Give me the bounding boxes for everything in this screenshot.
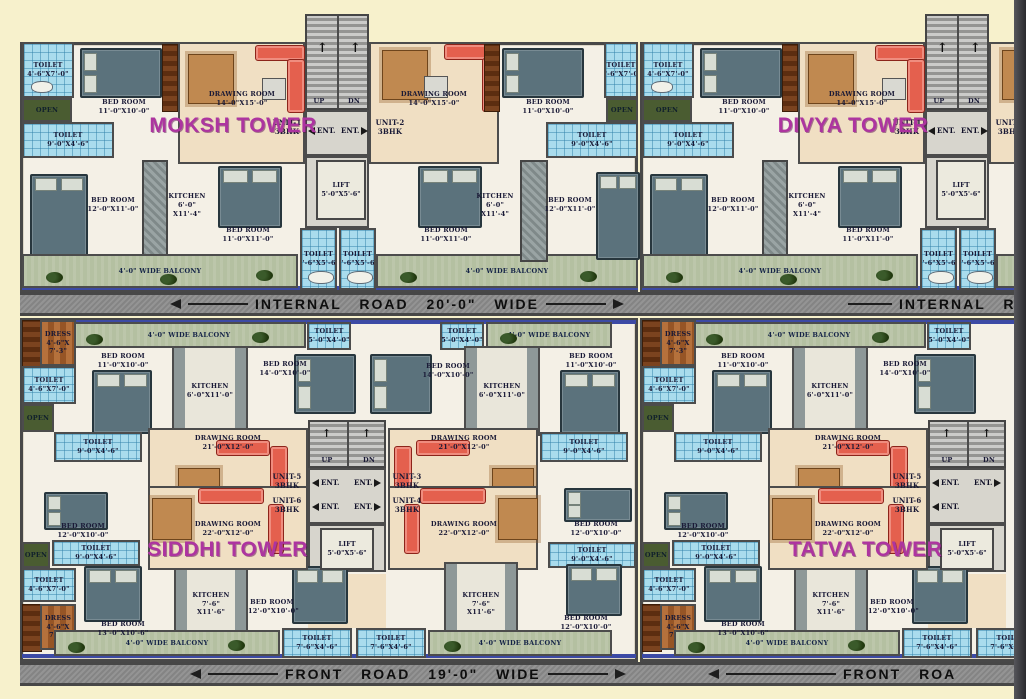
room-dim: 4'-6"X [46,339,69,348]
wardrobe-icon [642,604,662,652]
sofa-icon [198,488,264,504]
kitchen-counter-icon [142,160,168,262]
room-label: BED ROOM [702,196,764,205]
ent-label: ENT. [354,502,372,511]
up-label: UP [932,456,962,465]
room-dim: 11'-0"X10'-0" [506,107,590,116]
lift: LIFT5'-0"X5'-6" [316,160,366,220]
room-label: TOILET [703,438,732,447]
open-area: OPEN [642,98,692,122]
road-label-group: INTERNAL ROAD [848,296,1014,312]
moksh-tower-block: TOILET4'-6"X7'-0" OPEN TOILET9'-0"X4'-6"… [20,14,640,292]
room-label: DRESS [45,330,71,339]
room-label: TOILET [996,634,1014,643]
toilet-room: TOILET4'-6"X7'-0" [642,366,696,404]
toilet-room: TOILET4'-6"X5'-6" [959,228,996,290]
room-dim: 21'-0"X12'-0" [788,443,908,452]
room-dim: 14'-0"X15'-0" [810,99,914,108]
kitchen: KITCHEN6'-0"X11'-0" [464,346,540,436]
dn-label: DN [974,456,1004,465]
room-label: DRAWING ROOM [166,520,290,529]
bedroom-label: BED ROOM12'-0"X11'-0" [544,196,596,214]
toilet-room: TOILET4'-6"X5'-6" [920,228,957,290]
open-area: OPEN [22,542,50,568]
up-text: UP [306,97,332,106]
bedroom-label: BED ROOM12'-0"X10'-0" [550,614,622,632]
room-label: BED ROOM [702,98,786,107]
up-label: UP [306,97,332,106]
bed-icon [218,166,282,228]
plant-icon [86,334,103,345]
room-dim: 7'-6" [202,600,220,609]
balcony: 4'-0" WIDE BALCONY [692,322,926,348]
open-area: OPEN [606,98,638,122]
room-label: BED ROOM [868,598,916,607]
bed-icon [292,566,348,624]
toilet-fixture-icon [347,271,373,284]
room-dim: X11'-6" [817,608,845,617]
room-dim: 6'-0" [472,201,518,210]
lift-dim: 5'-0"X5'-6" [321,190,360,199]
plant-icon [160,274,177,285]
room-label: BED ROOM [544,196,596,205]
toilet-room: TOILET9'-0"X4'-6" [540,432,628,462]
room-label: BED ROOM [80,352,166,361]
ent-arrow-icon [374,503,381,511]
tower-name: MOKSH TOWER [138,114,328,138]
plant-icon [580,271,597,282]
drawing-room-label: DRAWING ROOM21'-0"X12'-0" [168,434,288,452]
room-label: KITCHEN [166,192,208,201]
arrow-line [546,303,606,305]
plant-icon [252,332,269,343]
kitchen-label: KITCHEN6'-0"X11'-4" [472,192,518,218]
plant-icon [444,641,461,652]
unit-label: UNIT-53BHK [888,472,926,491]
toilet-room: TOILET4'-6"X5'-6" [339,228,376,290]
room-label: BED ROOM [548,352,634,361]
room-label: DRESS [665,614,691,623]
room-dim: 12'-0"X10'-0" [550,623,622,632]
siddhi-tower-block: 4'-0" WIDE BALCONY 4'-0" WIDE BALCONY TO… [20,316,640,662]
entry-left: ENT. [932,478,959,487]
room-dim: 6'-0"X11'-0" [479,391,525,400]
drawing-room-label: DRAWING ROOM21'-0"X12'-0" [788,434,908,452]
room-label: BED ROOM [252,360,318,369]
room-label: KITCHEN [191,382,228,391]
plant-icon [876,270,893,281]
open-label: OPEN [36,106,58,115]
room-label: BED ROOM [248,598,296,607]
toilet-room: TOILET9'-0"X4'-6" [52,540,140,566]
room-dim: 7'-6"X4'-6" [916,643,957,652]
room-dim: 21'-0"X12'-0" [168,443,288,452]
room-label: KITCHEN [192,591,229,600]
room-label: TOILET [653,61,682,70]
tatva-tower-block: 4'-0" WIDE BALCONY TOILET5'-0"X4'-0" DRE… [640,316,1014,662]
up-text: UP [312,456,342,465]
room-label: DRAWING ROOM [402,520,526,529]
room-dim: 12'-0"X10'-0" [558,529,634,538]
room-label: DRESS [45,614,71,623]
plant-icon [706,334,723,345]
toilet-room: TOILET7'-6"X4'-6" [976,628,1014,658]
unit-label: UNIT-63BHK [888,496,926,515]
room-dim: 4'-6"X5'-6" [959,259,996,268]
arrow-line [208,673,278,675]
arrow-left-icon [190,669,201,679]
tower-name: TATVA TOWER [768,538,963,562]
lift-dim: 5'-0"X5'-6" [941,190,980,199]
bedroom-label: BED ROOM11'-0"X10'-0" [548,352,634,370]
room-label: TOILET [34,376,63,385]
internal-road-label: INTERNAL ROAD 20'-0" WIDE [255,296,539,312]
room-label: DRAWING ROOM [786,520,910,529]
stair-arrow-icon: ↑ [942,428,951,439]
room-label: TOILET [81,544,110,553]
bedroom-label: BED ROOM11'-0"X10'-0" [506,98,590,116]
open-area: OPEN [22,98,72,122]
room-label: TOILET [654,576,683,585]
unit-label: UNIT-23BHK [992,118,1014,137]
bedroom-label: BED ROOM11'-0"X10'-0" [700,352,786,370]
room-label: DRAWING ROOM [168,434,288,443]
drawing-room-label: DRAWING ROOM14'-0"X15'-0" [380,90,488,108]
room-label: TOILET [33,61,62,70]
sofa-icon [420,488,486,504]
room-label: DRAWING ROOM [404,434,524,443]
bedroom-label: BED ROOM12'-0"X10'-0" [668,522,738,540]
bed-icon [838,166,902,228]
toilet-room: TOILET9'-0"X4'-6" [546,122,638,158]
room-label: TOILET [934,327,963,336]
room-label: TOILET [606,61,635,70]
room-dim: 9'-0"X4'-6" [667,140,708,149]
room-label: DRAWING ROOM [1000,90,1014,99]
drawing-room-label: DRAWING ROOM14'-0"X15'-0" [190,90,294,108]
road-label-group: FRONT ROAD 19'-0" WIDE [190,666,626,682]
room-label: BED ROOM [48,522,118,531]
plant-icon [68,642,85,653]
balcony-label: 4'-0" WIDE BALCONY [746,639,829,648]
ent-arrow-icon [312,503,319,511]
room-label: TOILET [577,131,606,140]
room-dim: 4'-6"X7'-0" [648,385,689,394]
room-dim: 6'-0"X11'-0" [807,391,853,400]
room-label: TOILET [447,327,476,336]
entry-left: ENT. [932,502,959,511]
balcony-label: 4'-0" WIDE BALCONY [148,331,231,340]
floor-plan: TOILET4'-6"X7'-0" OPEN TOILET9'-0"X4'-6"… [0,0,1026,699]
toilet-fixture-icon [31,81,53,93]
unit-type: 3BHK [268,505,306,514]
arrow-line [726,673,836,675]
dn-label: DN [354,456,384,465]
entry-right: ENT. [961,126,988,135]
unit-number: UNIT-3 [388,472,426,481]
room-dim: 14'-0"X10'-0" [872,369,938,378]
entry-lobby [308,468,386,524]
room-label: TOILET [673,131,702,140]
wardrobe-icon [22,320,42,368]
bedroom-label: BED ROOM12'-0"X11'-0" [82,196,144,214]
unit-number: UNIT-2 [372,118,408,127]
plant-icon [256,270,273,281]
room-dim: 14'-0"X10'-0" [418,371,478,380]
lift-label: LIFT [338,540,355,549]
image-right-edge [1014,0,1026,699]
ent-arrow-icon [312,479,319,487]
room-label: BED ROOM [506,98,590,107]
front-road: FRONT ROAD 19'-0" WIDE FRONT ROA [20,662,1014,686]
stair-arrow-icon: ↑ [970,42,981,55]
open-label: OPEN [611,106,633,115]
top-band: TOILET4'-6"X7'-0" OPEN TOILET9'-0"X4'-6"… [20,14,1014,292]
toilet-room: TOILET4'-6"X5'-6" [300,228,337,290]
unit-number: UNIT-6 [268,496,306,505]
toilet-fixture-icon [928,271,954,284]
room-label: KITCHEN [472,192,518,201]
room-dim: 5'-0"X4'-0" [308,336,349,345]
room-label: TOILET [302,634,331,643]
balcony-label: 4'-0" WIDE BALCONY [119,267,202,276]
room-dim: 13'-0"X10'-6" [700,629,786,638]
room-dim: 7'-3" [49,347,67,356]
open-label: OPEN [656,106,678,115]
room-dim: 9'-0"X4'-6" [697,447,738,456]
toilet-room: TOILET9'-0"X4'-6" [22,122,114,158]
room-label: TOILET [83,438,112,447]
bedroom-label: BED ROOM13'-0"X10'-6" [700,620,786,638]
bedroom-label: BED ROOM11'-0"X10'-0" [80,352,166,370]
room-dim: 4'-6"X7'-0" [648,585,689,594]
toilet-room: TOILET4'-6"X7'-0" [22,366,76,404]
room-label: BED ROOM [828,226,908,235]
room-label: TOILET [569,438,598,447]
room-dim: 4'-6"X [666,339,689,348]
room-label: BED ROOM [208,226,288,235]
ent-label: ENT. [941,502,959,511]
bed-icon [704,566,762,622]
room-dim: 11'-0"X11'-0" [406,235,486,244]
bedroom-label: BED ROOM14'-0"X10'-0" [872,360,938,378]
open-label: OPEN [25,551,47,560]
ent-arrow-icon [932,479,939,487]
room-dim: X11'-4" [472,210,518,219]
entry-right: ENT. [354,502,381,511]
ent-arrow-icon [994,479,1001,487]
unit-number: UNIT-5 [268,472,306,481]
room-label: BED ROOM [80,620,166,629]
unit-label: UNIT-53BHK [268,472,306,491]
room-dim: 12'-0"X10'-0" [248,607,296,616]
stair-arrow-icon: ↑ [362,428,371,439]
toilet-room: TOILET5'-0"X4'-0" [307,322,351,350]
entry-right: ENT. [341,126,368,135]
bed-icon [596,172,640,260]
ent-label: ENT. [341,126,359,135]
internal-road-label-cut: INTERNAL ROAD [899,296,1014,312]
wardrobe-icon [642,320,662,368]
unit-label: UNIT-43BHK [388,496,426,515]
ent-arrow-icon [374,479,381,487]
balcony-label: 4'-0" WIDE BALCONY [126,639,209,648]
room-dim: 12'-0"X11'-0" [82,205,144,214]
room-label: DRESS [665,330,691,339]
bedroom-label: BED ROOM12'-0"X10'-0" [868,598,916,616]
stair-arrow-icon: ↑ [322,428,331,439]
dress-room: DRESS4'-6"X7'-3" [660,320,696,366]
internal-road: INTERNAL ROAD 20'-0" WIDE INTERNAL ROAD [20,292,1014,316]
open-label: OPEN [647,414,669,423]
up-text: UP [926,97,952,106]
room-dim: X11'-6" [467,608,495,617]
bed-icon [564,488,632,522]
room-dim: 9'-0"X4'-6" [77,447,118,456]
toilet-room: TOILET7'-6"X4'-6" [282,628,352,658]
ent-label: ENT. [974,478,992,487]
toilet-room: TOILET7'-6"X4'-6" [902,628,972,658]
unit-label: UNIT-63BHK [268,496,306,515]
bed-icon [912,566,968,624]
lift-label: LIFT [332,181,349,190]
room-dim: 12'-0"X11'-0" [544,205,596,214]
room-dim: 12'-0"X10'-0" [868,607,916,616]
bedroom-label: BED ROOM12'-0"X10'-0" [558,520,634,538]
divya-tower-block: TOILET4'-6"X7'-0" OPEN TOILET9'-0"X4'-6"… [640,14,1014,292]
bedroom-label: BED ROOM12'-0"X10'-0" [48,522,118,540]
room-dim: 4'-6"X7'-0" [647,70,688,79]
toilet-room: TOILET9'-0"X4'-6" [672,540,760,566]
toilet-room: TOILET4'-6"X7'-0" [22,42,74,98]
open-label: OPEN [27,414,49,423]
balcony-label: 4'-0" WIDE BALCONY [479,639,562,648]
stair-arrow-icon: ↑ [982,428,991,439]
room-dim: X11'-4" [166,210,208,219]
drawing-room-label: DRAWING ROOM14'-0"X15'-0" [1000,90,1014,108]
stair-arrow-icon: ↑ [937,42,948,55]
room-label: TOILET [963,250,992,259]
dn-text: DN [961,97,987,106]
room-dim: 4'-6"X5'-6" [339,259,376,268]
toilet-fixture-icon [967,271,993,284]
balcony-label: 4'-0" WIDE BALCONY [466,267,549,276]
balcony-label: 4'-0" WIDE BALCONY [508,331,591,340]
toilet-fixture-icon [308,271,334,284]
toilet-room: TOILET4'-6"X7'-0" [22,568,76,602]
room-dim: 7'-6"X4'-6" [296,643,337,652]
ent-label: ENT. [961,126,979,135]
plant-icon [666,272,683,283]
tower-name: SIDDHI TOWER [130,538,325,562]
unit-number: UNIT-2 [992,118,1014,127]
room-dim: 4'-6"X7'-0" [28,385,69,394]
dress-room: DRESS4'-6"X7'-3" [40,320,76,366]
dn-label: DN [341,97,367,106]
toilet-room: TOILET9'-0"X4'-6" [674,432,762,462]
room-dim: 11'-0"X11'-0" [208,235,288,244]
room-label: BED ROOM [550,614,622,623]
drawing-room-label: DRAWING ROOM22'-0"X12'-0" [786,520,910,538]
toilet-room: TOILET4'-6"X7'-0" [642,568,696,602]
up-label: UP [312,456,342,465]
room-dim: 11'-0"X11'-0" [828,235,908,244]
front-road-label: FRONT ROAD 19'-0" WIDE [285,666,541,682]
stair-arrow-icon: ↑ [350,42,361,55]
room-dim: 13'-0"X10'-6" [80,629,166,638]
ent-label: ENT. [321,502,339,511]
room-label: BED ROOM [668,522,738,531]
room-label: DRAWING ROOM [380,90,488,99]
unit-type: 3BHK [388,505,426,514]
room-label: BED ROOM [700,352,786,361]
drawing-room-label: DRAWING ROOM22'-0"X12'-0" [166,520,290,538]
plant-icon [688,642,705,653]
room-label: BED ROOM [418,362,478,371]
room-label: TOILET [343,250,372,259]
kitchen: KITCHEN6'-0"X11'-0" [172,346,248,436]
open-label: OPEN [645,551,667,560]
room-label: TOILET [304,250,333,259]
room-dim: 9'-0"X4'-6" [75,553,116,562]
arrow-right-icon [615,669,626,679]
plant-icon [400,272,417,283]
kitchen-label: KITCHEN6'-0"X11'-4" [786,192,828,218]
drawing-room-label: DRAWING ROOM14'-0"X15'-0" [810,90,914,108]
ent-arrow-icon [932,503,939,511]
room-dim: 22'-0"X12'-0" [402,529,526,538]
room-dim: 4'-6"X5'-6" [920,259,957,268]
stair-arrow-icon: ↑ [317,42,328,55]
bed-icon [80,48,162,98]
drawing-room-label: DRAWING ROOM21'-0"X12'-0" [404,434,524,452]
arrow-line [548,673,608,675]
room-dim: 14'-0"X10'-0" [252,369,318,378]
bottom-band: 4'-0" WIDE BALCONY 4'-0" WIDE BALCONY TO… [20,316,1014,662]
room-dim: 6'-0"X11'-0" [187,391,233,400]
room-label: KITCHEN [811,382,848,391]
room-label: BED ROOM [872,360,938,369]
lift-label: LIFT [952,181,969,190]
bedroom-label: BED ROOM11'-0"X10'-0" [82,98,166,116]
bedroom-label: BED ROOM12'-0"X11'-0" [702,196,764,214]
room-dim: 5'-0"X4'-0" [441,336,482,345]
room-label: TOILET [577,546,606,555]
plant-icon [46,272,63,283]
bed-icon [566,564,622,616]
room-dim: 4'-6"X5'-6" [300,259,337,268]
entry-right: ENT. [974,478,1001,487]
bed-icon [650,174,708,258]
room-dim: 22'-0"X12'-0" [166,529,290,538]
room-label: KITCHEN [462,591,499,600]
ent-label: ENT. [941,478,959,487]
plant-icon [228,640,245,651]
ent-arrow-icon [361,127,368,135]
bed-icon [700,48,782,98]
room-label: TOILET [53,131,82,140]
unit-label: UNIT-23BHK [372,118,408,137]
open-area: OPEN [642,404,674,432]
room-label: TOILET [654,376,683,385]
plant-icon [780,274,797,285]
lift: LIFT5'-0"X5'-6" [320,528,374,570]
room-label: KITCHEN [786,192,828,201]
bedroom-label: BED ROOM14'-0"X10'-0" [418,362,478,380]
arrow-line [188,303,248,305]
bedroom-label: BED ROOM11'-0"X11'-0" [828,226,908,244]
front-road-label-cut: FRONT ROA [843,666,956,682]
